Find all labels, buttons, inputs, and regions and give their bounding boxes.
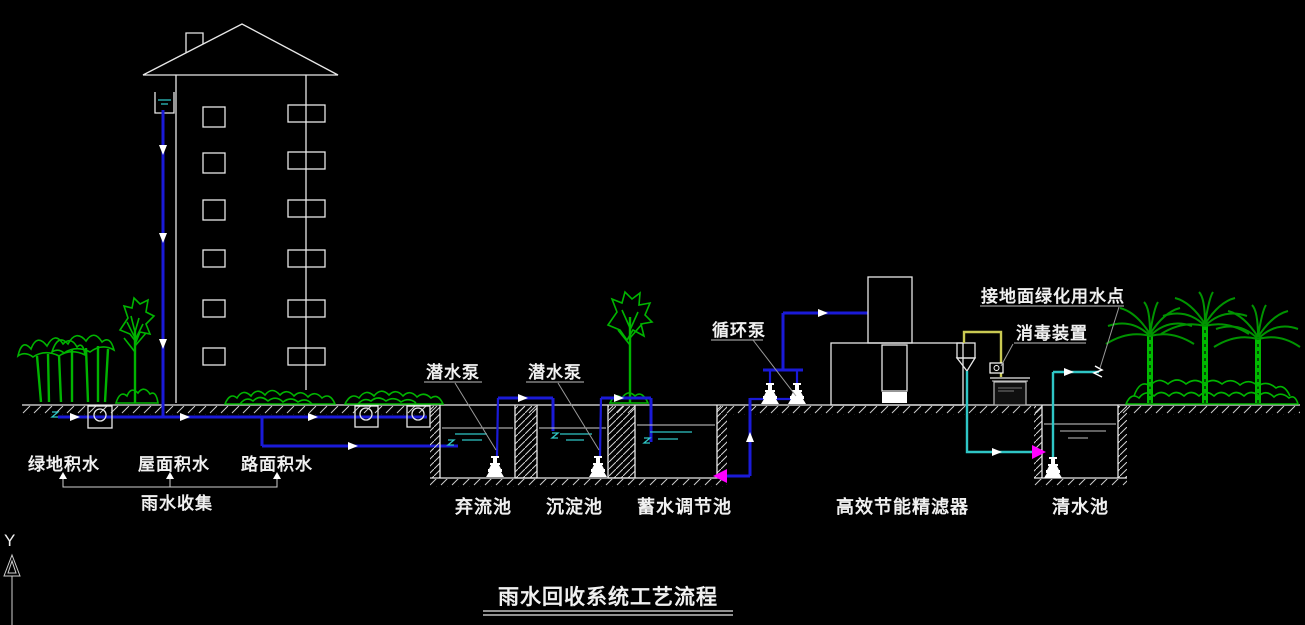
bush [225,391,443,405]
label-circulation-pump: 循环泵 [712,320,766,340]
umbrella-trees [18,335,114,402]
label-submersible-pump-1: 潜水泵 [426,362,480,382]
submersible-pump-symbol [486,456,504,477]
ground-hatch [1118,406,1300,415]
palm-tree [1161,292,1249,403]
label-discard-tank: 弃流池 [455,496,512,517]
filter-funnel [957,358,975,371]
label-filter: 高效节能精滤器 [836,496,969,517]
label-clean-tank: 清水池 [1052,496,1109,517]
ground-hatch [717,406,1042,415]
tree [608,292,652,403]
ground-hatch [22,406,440,415]
ground [22,405,1300,415]
dosing-valve [990,363,1003,373]
label-rain-collection: 雨水收集 [141,493,213,513]
windows [203,107,225,365]
filter-block [882,392,907,403]
label-sediment-tank: 沉淀池 [546,496,603,517]
label-submersible-pump-2: 潜水泵 [528,362,582,382]
chimney [186,33,203,53]
building [143,24,338,417]
circulation-pump-symbol [761,383,779,404]
submersible-pump-symbol [1044,457,1062,478]
collection-bracket [59,472,281,487]
ucs-icon: Y [4,531,20,625]
ucs-y-axis-label: Y [4,531,15,550]
cad-drawing-canvas[interactable]: 绿地积水 屋面积水 路面积水 雨水收集 潜水泵 潜水泵 弃流池 沉淀池 蓄水调节… [0,0,1305,625]
palm-tree [1106,302,1194,403]
filter-opening [882,345,907,391]
label-road-water: 路面积水 [241,454,313,474]
label-water-point: 接地面绿化用水点 [981,286,1125,306]
label-green-area-water: 绿地积水 [28,454,100,474]
drawing-title: 雨水回收系统工艺流程 [483,585,733,615]
roof [143,24,338,75]
rain-collection-box [155,92,174,113]
label-roof-water: 屋面积水 [138,454,210,474]
palm-tree [1214,305,1300,403]
circulation-pumps [750,309,868,404]
page-title: 雨水回收系统工艺流程 [498,585,718,609]
label-storage-tank: 蓄水调节池 [637,496,732,517]
submersible-pump-symbol [589,456,607,477]
circulation-pump-symbol [788,383,806,404]
clean-water-tank [1032,366,1127,478]
filter-tower [868,277,912,343]
disinfection-device [990,378,1030,405]
tree [116,298,158,403]
label-disinfection: 消毒装置 [1016,323,1088,343]
palm-trees [1106,292,1300,404]
